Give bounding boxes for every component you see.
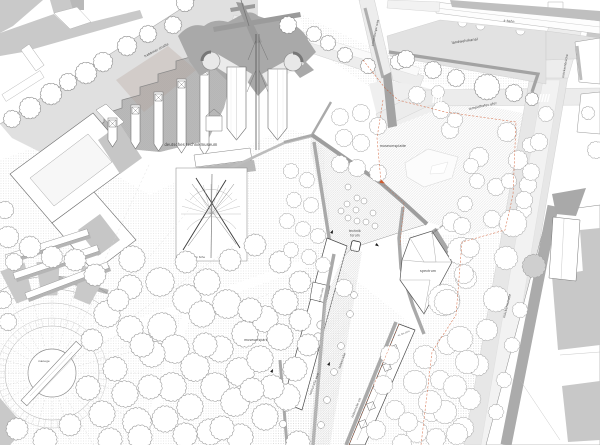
svg-text:museumspark: museumspark [244, 338, 268, 342]
svg-text:museumsplatte: museumsplatte [380, 144, 406, 148]
svg-text:technik: technik [349, 229, 361, 233]
svg-text:forum: forum [350, 234, 359, 238]
svg-text:manege: manege [38, 359, 50, 363]
svg-text:deutsches technikmuseum: deutsches technikmuseum [164, 142, 217, 147]
svg-text:spectrum: spectrum [420, 269, 436, 273]
